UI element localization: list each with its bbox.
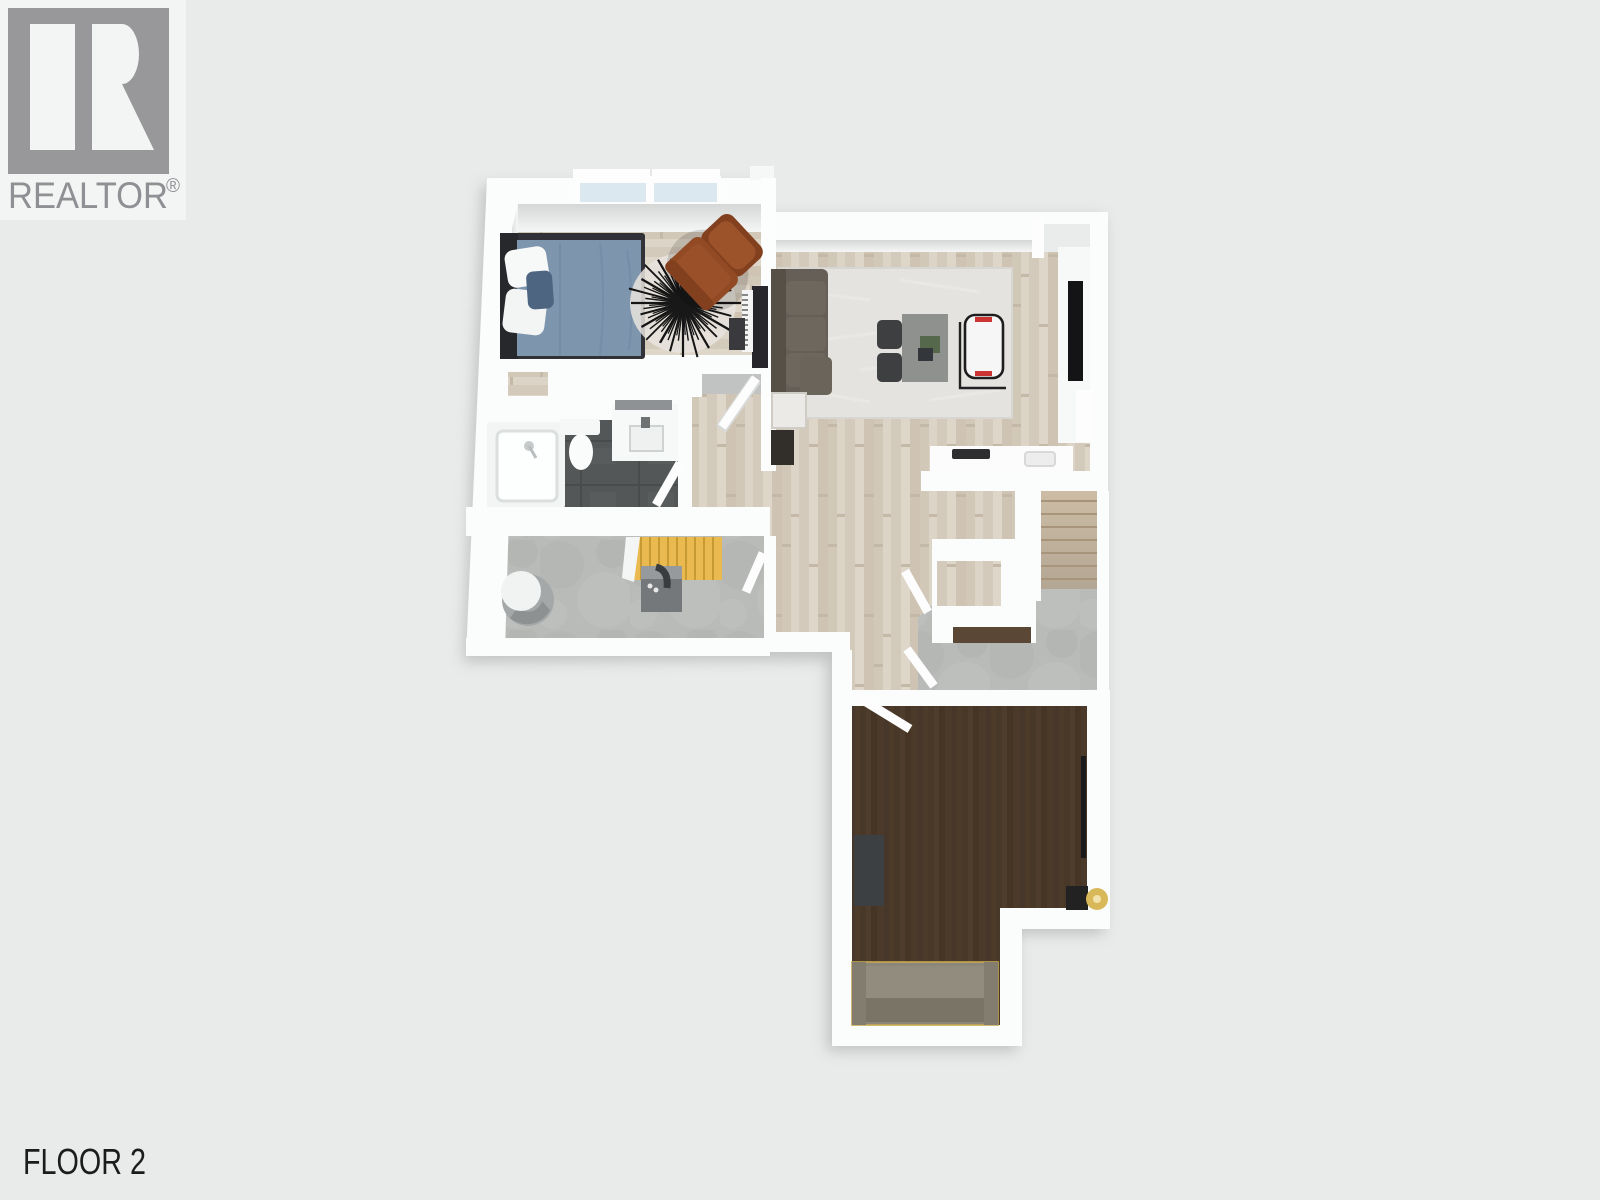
svg-text:FLOOR 2: FLOOR 2: [23, 1141, 146, 1182]
svg-text:REALTOR: REALTOR: [8, 175, 168, 216]
svg-text:®: ®: [166, 176, 180, 197]
